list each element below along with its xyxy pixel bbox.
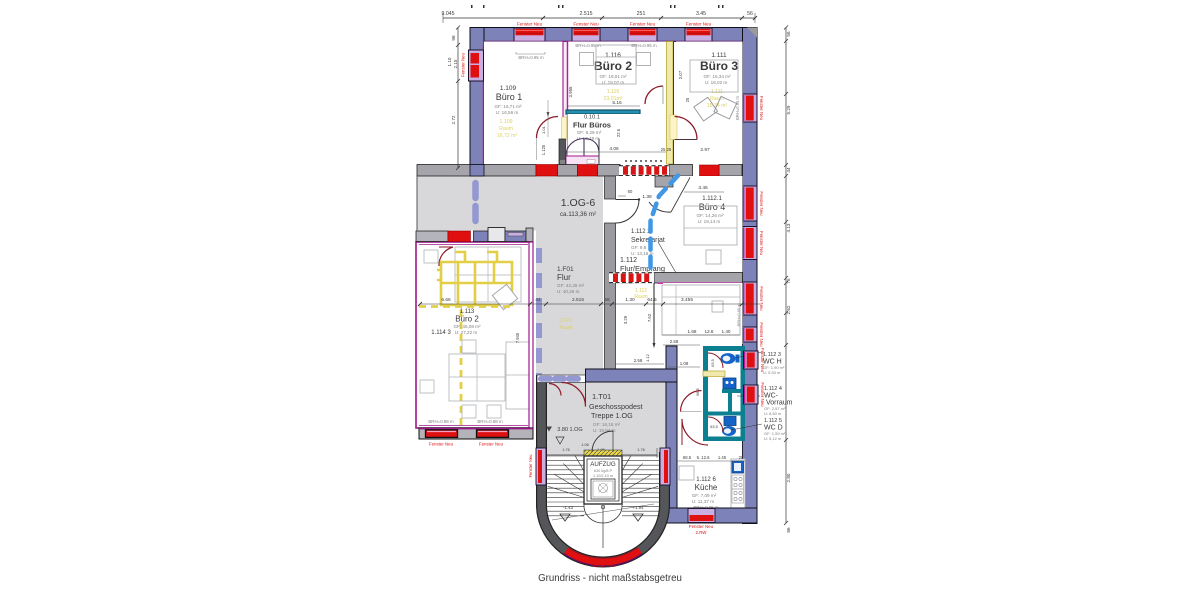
svg-text:Raum: Raum xyxy=(559,325,572,331)
svg-text:1.01: 1.01 xyxy=(541,125,546,134)
svg-text:Fenster Neu: Fenster Neu xyxy=(528,454,533,478)
svg-text:98: 98 xyxy=(451,35,456,41)
svg-text:1.68: 1.68 xyxy=(688,329,697,334)
svg-text:1.112 5: 1.112 5 xyxy=(764,418,782,424)
svg-text:BRH=0.95 m: BRH=0.95 m xyxy=(735,95,740,120)
svg-text:GF: 16,71 m²: GF: 16,71 m² xyxy=(494,104,522,109)
svg-text:Büro 2: Büro 2 xyxy=(455,315,479,324)
svg-text:U: 16,56 m: U: 16,56 m xyxy=(496,110,519,115)
svg-text:2.72: 2.72 xyxy=(451,115,456,124)
svg-text:251: 251 xyxy=(637,11,646,17)
svg-text:Fenster Neu: Fenster Neu xyxy=(517,22,543,27)
svg-text:GF: 45,08 m²: GF: 45,08 m² xyxy=(453,324,481,329)
svg-text:GF: 7,09 m²: GF: 7,09 m² xyxy=(692,493,717,498)
svg-text:1.10/2.10 m: 1.10/2.10 m xyxy=(593,474,613,478)
svg-text:1.T01: 1.T01 xyxy=(592,392,611,401)
svg-text:4.06: 4.06 xyxy=(609,146,619,152)
svg-text:1.38: 1.38 xyxy=(642,194,652,200)
svg-text:3.45: 3.45 xyxy=(698,185,708,191)
svg-text:Büro 2: Büro 2 xyxy=(594,59,632,73)
svg-text:Fenster Neu: Fenster Neu xyxy=(630,22,656,27)
svg-text:16,72 m²: 16,72 m² xyxy=(497,133,518,139)
svg-text:-1.43: -1.43 xyxy=(563,505,574,510)
svg-text:1.116: 1.116 xyxy=(605,52,621,59)
svg-text:U: 40,26 m: U: 40,26 m xyxy=(557,289,580,294)
svg-text:1.76: 1.76 xyxy=(562,448,569,452)
svg-text:GF: 16,16 m²: GF: 16,16 m² xyxy=(593,422,621,427)
svg-text:1.F01: 1.F01 xyxy=(557,266,574,273)
svg-text:U: 5,12 m: U: 5,12 m xyxy=(764,436,782,441)
svg-text:Raum: Raum xyxy=(634,294,647,300)
svg-text:2.80: 2.80 xyxy=(786,473,791,482)
svg-text:2.97: 2.97 xyxy=(700,147,710,153)
svg-text:68.5: 68.5 xyxy=(683,455,692,460)
svg-text:Fenster Neu: Fenster Neu xyxy=(461,52,466,77)
svg-text:3.45: 3.45 xyxy=(696,11,706,17)
svg-text:630 kg/8 P: 630 kg/8 P xyxy=(594,469,613,473)
svg-text:Fenster Neu: Fenster Neu xyxy=(759,231,764,256)
svg-text:Treppe 1.OG: Treppe 1.OG xyxy=(591,411,633,420)
svg-text:Sekretariat: Sekretariat xyxy=(631,237,665,244)
svg-text:44: 44 xyxy=(786,167,791,173)
svg-text:GF: 42,28 m²: GF: 42,28 m² xyxy=(557,283,585,288)
svg-text:U: 19,94 m: U: 19,94 m xyxy=(593,428,616,433)
svg-text:25: 25 xyxy=(685,97,690,102)
svg-text:1.F01: 1.F01 xyxy=(560,318,573,324)
svg-text:2.RW: 2.RW xyxy=(696,530,708,535)
svg-text:Küche: Küche xyxy=(695,483,718,492)
svg-text:1.116: 1.116 xyxy=(607,89,620,95)
svg-text:U: 27,22 m: U: 27,22 m xyxy=(455,330,478,335)
svg-text:2.515: 2.515 xyxy=(580,11,593,17)
svg-text:1.40: 1.40 xyxy=(722,329,731,334)
svg-text:1.109: 1.109 xyxy=(500,119,513,125)
svg-text:2.515: 2.515 xyxy=(572,297,584,303)
svg-text:7.945: 7.945 xyxy=(515,332,520,343)
svg-text:Flur Büros: Flur Büros xyxy=(573,121,611,130)
svg-text:AUFZUG: AUFZUG xyxy=(590,461,616,468)
svg-text:1.112: 1.112 xyxy=(620,257,637,264)
svg-text:Fenster Neu: Fenster Neu xyxy=(686,22,712,27)
svg-text:12.8: 12.8 xyxy=(705,329,714,334)
svg-text:Büro 4: Büro 4 xyxy=(699,202,726,212)
svg-text:2.15: 2.15 xyxy=(453,59,458,68)
svg-text:Fenster Neu: Fenster Neu xyxy=(429,442,454,447)
svg-text:Geschosspodest: Geschosspodest xyxy=(589,402,643,411)
svg-text:1.08: 1.08 xyxy=(680,361,689,366)
svg-text:Fenster Neu: Fenster Neu xyxy=(591,563,616,568)
svg-text:1.10: 1.10 xyxy=(447,57,452,66)
svg-text:1.76: 1.76 xyxy=(637,448,644,452)
svg-text:44: 44 xyxy=(535,297,541,303)
svg-text:Büro 3: Büro 3 xyxy=(700,59,738,73)
svg-text:1.12: 1.12 xyxy=(645,353,650,362)
svg-text:1.112 2: 1.112 2 xyxy=(631,229,651,235)
svg-text:2.58: 2.58 xyxy=(670,339,679,344)
svg-text:WC-: WC- xyxy=(764,393,779,400)
svg-text:63,5: 63,5 xyxy=(710,425,717,429)
svg-text:Fenster Neu: Fenster Neu xyxy=(573,22,599,27)
svg-text:63.5: 63.5 xyxy=(711,359,715,366)
svg-text:68.5: 68.5 xyxy=(696,388,700,395)
svg-text:BRH=0.85 m: BRH=0.85 m xyxy=(736,303,741,327)
svg-text:1.111: 1.111 xyxy=(711,52,727,59)
svg-text:Fenster Neu: Fenster Neu xyxy=(479,442,504,447)
svg-text:GF: 9,29 m²: GF: 9,29 m² xyxy=(577,130,602,135)
svg-text:1.109: 1.109 xyxy=(500,85,517,92)
svg-text:58: 58 xyxy=(604,297,610,303)
svg-text:6.66: 6.66 xyxy=(441,297,451,303)
svg-text:Fenster Neu: Fenster Neu xyxy=(760,348,765,373)
svg-text:2.07: 2.07 xyxy=(678,70,683,79)
svg-text:GF: 19,01 m²: GF: 19,01 m² xyxy=(599,74,627,79)
svg-text:Flur: Flur xyxy=(557,273,571,282)
svg-text:BRH=0.88 m: BRH=0.88 m xyxy=(428,419,454,424)
svg-text:3.955: 3.955 xyxy=(568,86,573,98)
svg-text:5.16: 5.16 xyxy=(612,100,622,106)
svg-text:56: 56 xyxy=(747,11,753,17)
svg-text:Flur/Empfang: Flur/Empfang xyxy=(620,264,665,273)
svg-text:Fenster Neu: Fenster Neu xyxy=(759,96,764,121)
svg-text:7.62: 7.62 xyxy=(647,313,652,322)
svg-text:Fenster Neu: Fenster Neu xyxy=(759,322,764,347)
svg-text:Raum: Raum xyxy=(499,126,513,132)
svg-text:Fenster Neu: Fenster Neu xyxy=(689,524,714,529)
svg-text:Fenster Neu: Fenster Neu xyxy=(759,286,764,311)
svg-text:U: 16,02 m: U: 16,02 m xyxy=(705,80,728,85)
svg-text:GF: 14,26 m²: GF: 14,26 m² xyxy=(696,213,724,218)
svg-text:U: 8,60 m: U: 8,60 m xyxy=(764,411,782,416)
svg-text:64.5: 64.5 xyxy=(647,297,657,303)
svg-text:ca.113,36 m²: ca.113,36 m² xyxy=(560,211,596,218)
svg-text:76: 76 xyxy=(786,278,791,284)
svg-text:2.62: 2.62 xyxy=(786,305,791,314)
svg-text:56: 56 xyxy=(786,31,791,37)
svg-text:4.13: 4.13 xyxy=(786,223,791,232)
svg-text:1.114 3: 1.114 3 xyxy=(431,330,451,336)
svg-text:Fenster Neu: Fenster Neu xyxy=(760,382,765,407)
svg-text:28: 28 xyxy=(739,455,744,460)
svg-text:1.45: 1.45 xyxy=(718,455,727,460)
svg-text:86: 86 xyxy=(786,527,791,533)
svg-text:1.06: 1.06 xyxy=(581,443,588,447)
svg-text:3.80 1.OG: 3.80 1.OG xyxy=(557,427,582,433)
svg-text:GF: 15,34 m²: GF: 15,34 m² xyxy=(703,74,731,79)
svg-text:Büro 1: Büro 1 xyxy=(496,92,523,102)
svg-text:2.58: 2.58 xyxy=(634,358,643,363)
svg-text:9.045: 9.045 xyxy=(442,11,455,17)
svg-text:1.112 4: 1.112 4 xyxy=(764,386,782,392)
svg-text:25 25: 25 25 xyxy=(661,147,672,152)
svg-text:U: 19,14 m: U: 19,14 m xyxy=(698,219,721,224)
svg-text:BRH=0.95 m: BRH=0.95 m xyxy=(518,55,544,60)
svg-text:5. 12.6: 5. 12.6 xyxy=(697,455,710,460)
svg-text:Grundriss - nicht maßstabsgetr: Grundriss - nicht maßstabsgetreu xyxy=(538,573,682,584)
svg-text:1.30: 1.30 xyxy=(625,297,635,303)
svg-text:GF: 9,8: GF: 9,8 xyxy=(631,245,647,250)
svg-text:Fenster Neu: Fenster Neu xyxy=(759,191,764,216)
svg-text:1.125: 1.125 xyxy=(541,144,546,155)
svg-text:3.29: 3.29 xyxy=(623,315,628,324)
svg-text:U: 11,37 m: U: 11,37 m xyxy=(692,499,714,504)
svg-text:22.5: 22.5 xyxy=(616,128,621,137)
svg-text:+1.94: +1.94 xyxy=(632,505,644,510)
svg-text:5.29: 5.29 xyxy=(786,105,791,114)
svg-text:BRH=0.88 m: BRH=0.88 m xyxy=(477,419,503,424)
svg-text:BRH=0.95 m: BRH=0.95 m xyxy=(575,43,601,48)
svg-text:3.455: 3.455 xyxy=(681,297,693,303)
svg-text:1.OG-6: 1.OG-6 xyxy=(561,197,596,209)
svg-text:60: 60 xyxy=(628,189,633,194)
svg-text:BRH=0.95 m: BRH=0.95 m xyxy=(631,43,657,48)
